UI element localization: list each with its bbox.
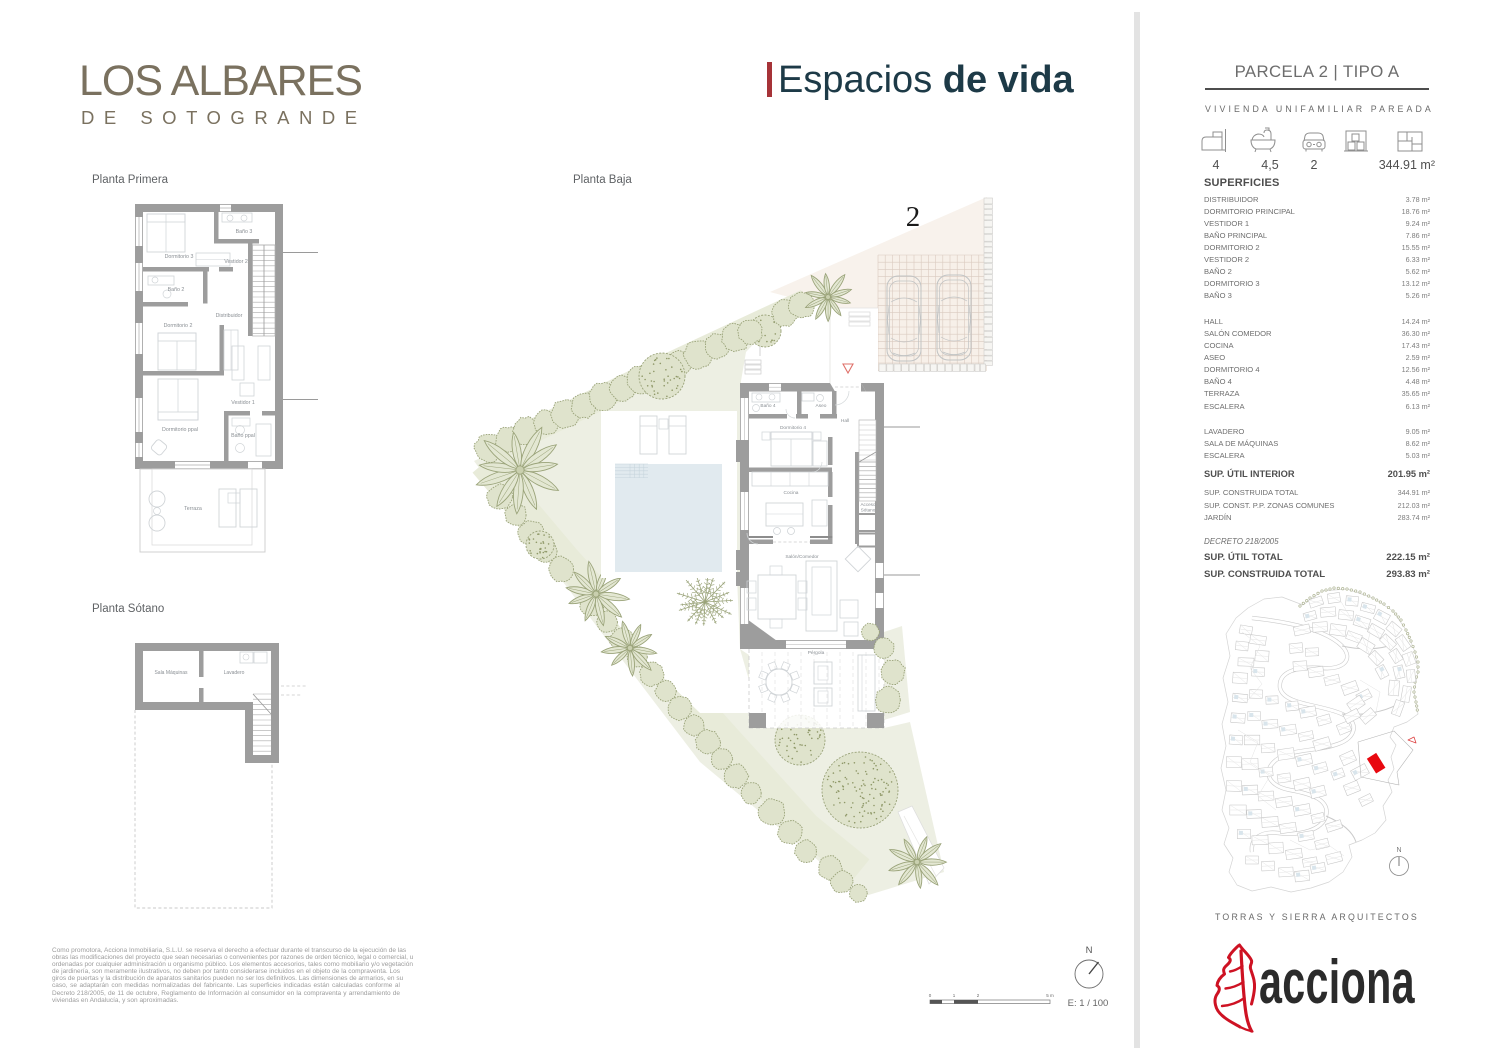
svg-text:Terraza: Terraza: [184, 506, 202, 512]
svg-text:Vestidor 2: Vestidor 2: [224, 259, 248, 265]
svg-text:2: 2: [906, 201, 921, 233]
svg-text:Distribuidor: Distribuidor: [216, 313, 243, 319]
svg-text:Baño 4: Baño 4: [760, 403, 776, 409]
svg-text:N: N: [1396, 847, 1401, 854]
svg-text:Sótano: Sótano: [861, 508, 876, 513]
svg-text:Dormitorio 3: Dormitorio 3: [165, 254, 194, 260]
svg-text:Salón/Comedor: Salón/Comedor: [785, 554, 819, 560]
svg-text:E: 1 / 100: E: 1 / 100: [1068, 998, 1109, 1009]
svg-text:1: 1: [953, 993, 956, 998]
svg-text:0: 0: [929, 993, 932, 998]
svg-text:Sala Máquinas: Sala Máquinas: [154, 670, 188, 676]
svg-text:Lavadero: Lavadero: [224, 670, 245, 676]
svg-text:Cocina: Cocina: [784, 490, 799, 496]
svg-text:2: 2: [977, 993, 980, 998]
svg-text:Baño ppal: Baño ppal: [231, 433, 255, 439]
svg-text:Vestidor 1: Vestidor 1: [231, 400, 255, 406]
svg-text:N: N: [1086, 945, 1093, 956]
svg-text:Baño 3: Baño 3: [236, 229, 253, 235]
svg-text:Acceso: Acceso: [860, 502, 876, 507]
svg-text:Baño 2: Baño 2: [168, 287, 185, 293]
svg-text:Dormitorio 4: Dormitorio 4: [780, 425, 806, 431]
svg-text:Dormitorio 2: Dormitorio 2: [164, 323, 193, 329]
svg-text:Aseo: Aseo: [816, 403, 827, 409]
svg-text:Dormitorio ppal: Dormitorio ppal: [162, 427, 198, 433]
svg-text:Pérgola: Pérgola: [808, 650, 825, 656]
svg-text:Hall: Hall: [841, 418, 849, 424]
svg-text:5 m: 5 m: [1046, 993, 1054, 998]
